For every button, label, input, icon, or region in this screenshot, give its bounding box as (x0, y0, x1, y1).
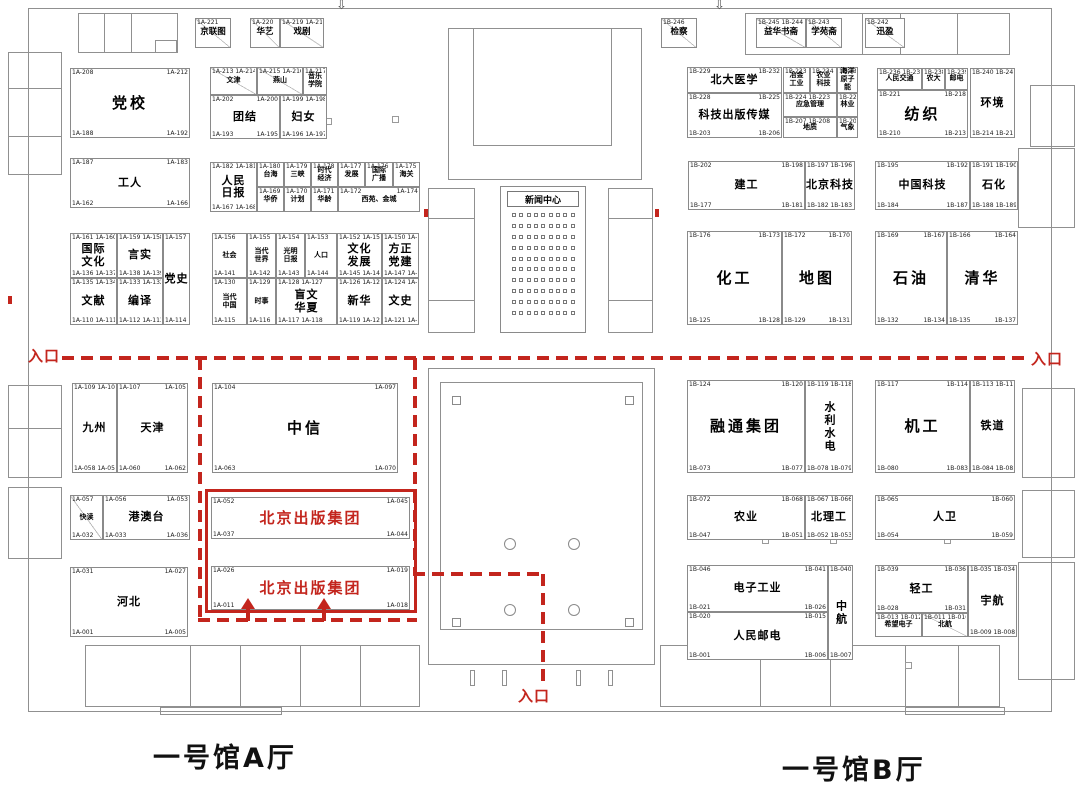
booth-label: 清华 (948, 232, 1017, 324)
booth-beida-yixue: 1B-2291B-232北大医学 (687, 67, 782, 93)
booth-taihai: 1A-180台海 (257, 162, 284, 187)
booth-beiligong: 1B-067 1B-066北理工1B-052 1B-053 (805, 495, 853, 540)
fire-mark-icon (424, 209, 428, 217)
booth-numbers: 1B-214 1B-215 (972, 130, 1013, 138)
booth-number: 1B-206 (758, 130, 780, 138)
booth-number: 1B-026 (804, 604, 826, 612)
booth-huanjing: 1B-240 1B-241环境1B-214 1B-215 (970, 68, 1015, 138)
booth-number: 1A-138 1A-139 (119, 270, 161, 278)
booth-yinyue-xueyuan: 1A-217音乐 学院 (303, 67, 327, 95)
booth-numbers: 1A-114 (165, 317, 188, 325)
seat (549, 311, 553, 315)
booth-wenjin: 1A-213 1A-214文津 (210, 67, 257, 95)
booth-numbers: 1B-1291B-131 (784, 317, 850, 325)
seat (527, 224, 531, 228)
booth-numbers: 1B-2101B-213 (879, 130, 966, 138)
wall (1018, 562, 1075, 680)
booth-hebei: 1A-0311A-027河北1A-0011A-005 (70, 567, 188, 637)
wall (428, 218, 475, 219)
path-arrow-icon (317, 598, 331, 609)
booth-number: 1B-054 (877, 532, 899, 540)
booth-numbers: 1A-136 1A-137 (72, 270, 115, 278)
booth-dianzi-gongye: 1B-0461B-041电子工业1B-0211B-026 (687, 565, 828, 612)
booth-label: 华艺 (251, 19, 279, 47)
booth-number: 1B-132 (877, 317, 899, 325)
booth-numbers: 1A-147 1A-148 (384, 270, 417, 278)
booth-label: 计划 (285, 188, 310, 211)
wall (1022, 490, 1075, 558)
booth-label: 化工 (688, 232, 781, 324)
wall (155, 40, 177, 53)
wall (8, 136, 62, 137)
booth-label: 华侨 (258, 188, 283, 211)
seat (519, 289, 523, 293)
booth-label: 天津 (118, 384, 187, 472)
booth-numbers: 1B-182 1B-183 (807, 202, 853, 210)
entrance-label-left: 入口 (28, 345, 60, 366)
booth-number: 1A-110 1A-111 (72, 317, 115, 325)
booth-label: 华龄 (312, 188, 337, 211)
seat (563, 278, 567, 282)
booth-youdian: 1B-239邮电 (945, 68, 968, 90)
seat (512, 300, 516, 304)
booth-xiju: 1A-219 1A-218戏剧 (280, 18, 324, 48)
booth-number: 1B-184 (877, 202, 899, 210)
booth-wenxian: 1A-135 1A-134文献1A-110 1A-111 (70, 278, 117, 325)
booth-keji-chuban-chuanmei: 1B-2281B-225科技出版传媒1B-2031B-206 (687, 93, 782, 138)
booth-label: 气象 (838, 118, 857, 137)
booth-dangxiao: 1A-2081A-212党校1A-1881A-192 (70, 68, 190, 138)
seat (512, 267, 516, 271)
booth-zhonghang: 1B-040中航1B-007 (828, 565, 853, 660)
seat (534, 278, 538, 282)
booth-number: 1B-177 (690, 202, 712, 210)
booth-rongtong-jituan: 1B-1241B-120融通集团1B-0731B-077 (687, 380, 805, 473)
wall (428, 300, 475, 301)
booth-guangming-ribao: 1A-154光明 日报1A-143 (276, 233, 305, 278)
path-arrow-icon (241, 598, 255, 609)
booth-number: 1B-073 (689, 465, 711, 473)
booth-number: 1A-193 (212, 131, 233, 139)
fire-mark-icon (8, 296, 12, 304)
seat (527, 300, 531, 304)
booth-huayi: 1A-220华艺 (250, 18, 280, 48)
booth-number: 1A-167 1A-168 (212, 204, 255, 212)
seat (563, 267, 567, 271)
booth-numbers: 1A-121 1A-122 (384, 317, 417, 325)
seat (563, 300, 567, 304)
booth-label: 迅盈 (866, 19, 904, 47)
pillar (905, 662, 912, 669)
seat (527, 311, 531, 315)
booth-huagong: 1B-1761B-173化工1B-1251B-128 (687, 231, 782, 325)
booth-number: 1B-214 1B-215 (972, 130, 1013, 138)
booth-numbers: 1B-1251B-128 (689, 317, 780, 325)
booth-shishi: 1A-129时事1A-116 (247, 278, 276, 325)
booth-tiedao: 1B-113 1B-112铁道1B-084 1B-085 (970, 380, 1015, 473)
seat (512, 311, 516, 315)
seat (527, 235, 531, 239)
booth-numbers: 1B-009 1B-008 (970, 629, 1015, 637)
booth-numbers: 1B-078 1B-079 (807, 465, 851, 473)
booth-sanxia: 1A-179三峡 (284, 162, 311, 187)
seat (571, 213, 575, 217)
exhibition-floor-plan: 新闻中心 1A-221京联图1A-220华艺1A-219 1A-218戏剧1A-… (0, 0, 1080, 786)
entrance-arrow-icon: ⇩ (336, 0, 347, 13)
booth-huaqiao: 1A-169华侨 (257, 187, 284, 212)
booth-numbers: 1A-142 (249, 270, 274, 278)
booth-numbers: 1B-1771B-181 (690, 202, 803, 210)
booth-shidai-jingji: 1A-178时代 经济 (311, 162, 338, 187)
booth-numbers: 1B-2031B-206 (689, 130, 780, 138)
seat (571, 278, 575, 282)
booth-beihang: 1B-011 1B-010北航 (922, 613, 968, 637)
wall (428, 188, 475, 333)
booth-number: 1A-060 (119, 465, 140, 473)
booth-numbers: 1A-058 1A-059 (74, 465, 115, 473)
seat (549, 300, 553, 304)
booth-number: 1B-188 1B-189 (972, 202, 1016, 210)
entrance-label-right: 入口 (1031, 348, 1063, 369)
booth-numbers: 1B-084 1B-085 (972, 465, 1013, 473)
seat (519, 224, 523, 228)
wall (502, 670, 507, 686)
seat (556, 278, 560, 282)
booth-number: 1A-117 1A-118 (278, 317, 323, 325)
booth-fazhan: 1A-177发展 (338, 162, 365, 187)
seat (556, 213, 560, 217)
booth-number: 1B-001 (689, 652, 711, 660)
booth-fangzheng-dangjian: 1A-150 1A-149方正 党建1A-147 1A-148 (382, 233, 419, 278)
booth-number: 1A-112 1A-113 (119, 317, 161, 325)
booth-wenshi: 1A-124 1A-123文史1A-121 1A-122 (382, 278, 419, 325)
booth-number: 1A-005 (165, 629, 186, 637)
booth-numbers: 1A-141 (214, 270, 245, 278)
booth-numbers: 1A-138 1A-139 (119, 270, 161, 278)
booth-number: 1A-033 (105, 532, 126, 540)
wall (905, 645, 906, 707)
booth-number: 1B-125 (689, 317, 711, 325)
booth-label: 地图 (783, 232, 851, 324)
booth-yuhang: 1B-035 1B-034宇航1B-009 1B-008 (968, 565, 1017, 637)
booth-numbers: 1B-0281B-031 (877, 605, 966, 613)
booth-renmin-ribao: 1A-182 1A-181人民 日报1A-167 1A-168 (210, 162, 257, 212)
seat (512, 257, 516, 261)
wall (576, 670, 581, 686)
seat (563, 289, 567, 293)
booth-number: 1A-115 (214, 317, 235, 325)
booth-renkou: 1A-153人口1A-144 (305, 233, 337, 278)
booth-jinglian: 1A-221京联图 (195, 18, 231, 48)
booth-number: 1A-196 1A-197 (282, 131, 325, 139)
seat (534, 246, 538, 250)
seat (549, 246, 553, 250)
booth-numbers: 1A-143 (278, 270, 303, 278)
booth-jiancha: 1B-246检察 (661, 18, 697, 48)
seat (527, 246, 531, 250)
booth-number: 1A-145 1A-146 (339, 270, 380, 278)
booth-numbers: 1B-0011B-006 (689, 652, 826, 660)
booth-number: 1A-001 (72, 629, 93, 637)
booth-nongye: 1B-0721B-068农业1B-0471B-051 (687, 495, 805, 540)
route-dash-left (198, 358, 202, 620)
booth-guoji-wenhua: 1A-161 1A-160国际 文化1A-136 1A-137 (70, 233, 117, 278)
booth-number: 1B-129 (784, 317, 806, 325)
seat (549, 235, 553, 239)
booth-yingji-guanli: 1B-224 1B-223应急管理 (783, 93, 837, 117)
seat (549, 267, 553, 271)
booth-number: 1A-036 (167, 532, 188, 540)
hall-a-title: 一号馆A厅 (153, 736, 297, 775)
booth-label: 林业 (838, 94, 857, 116)
booth-number: 1B-028 (877, 605, 899, 613)
booth-number: 1B-210 (879, 130, 901, 138)
seat (519, 257, 523, 261)
seat (527, 267, 531, 271)
highlight-box-beijing-chuban-jituan (205, 489, 417, 613)
booth-numbers: 1A-1881A-192 (72, 130, 188, 138)
booth-nongda: 1B-238农大 (922, 68, 945, 90)
booth-number: 1A-195 (257, 131, 278, 139)
booth-label: 时代 经济 (312, 163, 337, 186)
seat (563, 311, 567, 315)
wall (1022, 388, 1075, 478)
booth-nongye-keji: 1B-234农业 科技 (810, 67, 837, 93)
booth-numbers: 1A-032 (72, 532, 101, 540)
booth-number: 1A-032 (72, 532, 93, 540)
booth-numbers: 1B-007 (830, 652, 851, 660)
seat (512, 213, 516, 217)
fire-mark-icon (655, 209, 659, 217)
seat (527, 213, 531, 217)
seat (527, 257, 531, 261)
floor-circle (504, 538, 516, 550)
booth-numbers: 1B-0541B-059 (877, 532, 1013, 540)
booth-shuili-shuidian: 1B-119 1B-118水利水电1B-078 1B-079 (805, 380, 853, 473)
booth-number: 1B-128 (758, 317, 780, 325)
booth-numbers: 1A-0631A-070 (214, 465, 396, 473)
booth-zhongxin: 1A-1041A-097中信1A-0631A-070 (212, 383, 398, 473)
booth-number: 1B-047 (689, 532, 711, 540)
booth-xiyuan-jincheng: 1A-1721A-174西苑、金城 (338, 187, 420, 212)
booth-number: 1A-141 (214, 270, 235, 278)
booth-dangdai-shijie: 1A-155当代 世界1A-142 (247, 233, 276, 278)
booth-label: 益华书斋 (757, 19, 805, 47)
seat (571, 267, 575, 271)
booth-number: 1B-203 (689, 130, 711, 138)
booth-label: 河北 (71, 568, 187, 636)
seat (571, 224, 575, 228)
wall (8, 88, 62, 89)
booth-numbers: 1A-196 1A-197 (282, 131, 325, 139)
wall (905, 707, 1005, 715)
booth-label: 环境 (971, 69, 1014, 137)
booth-numbers: 1A-0601A-062 (119, 465, 186, 473)
booth-numbers: 1A-1931A-195 (212, 131, 278, 139)
seat (541, 278, 545, 282)
seat (571, 257, 575, 261)
wall (240, 645, 241, 707)
wall (1018, 148, 1075, 228)
seat (534, 311, 538, 315)
booth-mangwen-huaxia: 1A-128 1A-127盲文 华夏1A-117 1A-118 (276, 278, 337, 325)
seat (512, 289, 516, 293)
seat (541, 257, 545, 261)
booth-label: 农大 (923, 69, 944, 89)
seat (571, 246, 575, 250)
booth-numbers: 1B-052 1B-053 (807, 532, 851, 540)
booth-numbers: 1B-0731B-077 (689, 465, 803, 473)
booth-number: 1B-021 (689, 604, 711, 612)
booth-label: 北大医学 (688, 68, 781, 92)
booth-number: 1A-166 (167, 200, 188, 208)
booth-bianyi: 1A-133 1A-132编译1A-112 1A-113 (117, 278, 163, 325)
booth-label: 宇航 (969, 566, 1016, 636)
booth-shihua: 1B-191 1B-190石化1B-188 1B-189 (970, 161, 1018, 210)
wall (190, 645, 191, 707)
seat (512, 224, 516, 228)
booth-label: 党史 (164, 234, 189, 324)
seat (519, 267, 523, 271)
booth-label: 戏剧 (281, 19, 323, 47)
booth-renmin-youdian: 1B-0201B-015人民邮电1B-0011B-006 (687, 612, 828, 660)
booth-number: 1A-121 1A-122 (384, 317, 417, 325)
pillar (392, 116, 399, 123)
seat (534, 289, 538, 293)
booth-numbers: 1B-0801B-083 (877, 465, 968, 473)
seat (541, 235, 545, 239)
booth-label: 水利水电 (806, 381, 852, 472)
booth-numbers: 1B-1841B-187 (877, 202, 968, 210)
booth-xueyuanzhai: 1B-243学苑斋 (806, 18, 842, 48)
wall (160, 707, 282, 715)
news-center-seats (512, 213, 576, 317)
booth-numbers: 1B-0471B-051 (689, 532, 803, 540)
booth-label: 地质 (784, 118, 836, 137)
seat (541, 289, 545, 293)
booth-number: 1B-009 1B-008 (970, 629, 1015, 637)
booth-number: 1A-058 1A-059 (74, 465, 115, 473)
booth-label: 三峡 (285, 163, 310, 186)
seat (556, 246, 560, 250)
route-dash-bottom (198, 618, 417, 622)
booth-number: 1B-083 (946, 465, 968, 473)
floor-square (452, 618, 461, 627)
seat (556, 289, 560, 293)
booth-label: 中信 (213, 384, 397, 472)
booth-number: 1B-084 1B-085 (972, 465, 1013, 473)
booth-number: 1B-077 (781, 465, 803, 473)
wall (958, 645, 959, 707)
booth-yanshan: 1A-215 1A-216燕山 (257, 67, 303, 95)
booth-number: 1B-007 (830, 652, 851, 660)
booth-label: 音乐 学院 (304, 68, 326, 94)
booth-tianjin: 1A-1071A-105天津1A-0601A-062 (117, 383, 188, 473)
booth-number: 1A-114 (165, 317, 186, 325)
seat (534, 267, 538, 271)
booth-number: 1A-063 (214, 465, 235, 473)
booth-number: 1B-051 (781, 532, 803, 540)
booth-yihua-shuzhai: 1B-245 1B-244益华书斋 (756, 18, 806, 48)
booth-tuanjie: 1A-2021A-200团结1A-1931A-195 (210, 95, 280, 139)
booth-number: 1B-031 (944, 605, 966, 613)
booth-number: 1B-080 (877, 465, 899, 473)
floor-circle (568, 538, 580, 550)
seat (571, 289, 575, 293)
route-dash-top (62, 356, 1030, 360)
seat (534, 213, 538, 217)
booth-label: 人民交通 (878, 69, 921, 89)
booth-label: 石油 (876, 232, 946, 324)
booth-shehui: 1A-156社会1A-141 (212, 233, 247, 278)
booth-dangdai-zhongguo: 1A-130当代 中国1A-115 (212, 278, 247, 325)
floor-circle (504, 604, 516, 616)
booth-label: 检察 (662, 19, 696, 47)
booth-numbers: 1A-115 (214, 317, 245, 325)
seat (556, 300, 560, 304)
route-dash-entry (541, 574, 545, 684)
booth-beijing-keji: 1B-197 1B-196北京科技1B-182 1B-183 (805, 161, 855, 210)
booth-label: 学苑斋 (807, 19, 841, 47)
booth-label: 应急管理 (784, 94, 836, 116)
booth-numbers: 1A-117 1A-118 (278, 317, 335, 325)
seat (549, 257, 553, 261)
booth-numbers: 1B-1351B-137 (949, 317, 1016, 325)
booth-gongren: 1A-1871A-183工人1A-1621A-166 (70, 158, 190, 208)
seat (563, 224, 567, 228)
booth-number: 1B-006 (804, 652, 826, 660)
booth-label: 党校 (71, 69, 189, 137)
booth-label: 邮电 (946, 69, 967, 89)
booth-numbers: 1A-110 1A-111 (72, 317, 115, 325)
booth-numbers: 1B-1321B-134 (877, 317, 945, 325)
booth-renmin-jiaotong: 1B-236 1B-237人民交通 (877, 68, 922, 90)
seat (541, 213, 545, 217)
hall-b-title: 一号馆B厅 (782, 748, 926, 786)
seat (519, 311, 523, 315)
booth-number: 1A-119 1A-120 (339, 317, 380, 325)
booth-number: 1B-135 (949, 317, 971, 325)
booth-haiguan: 1A-175海关 (393, 162, 420, 187)
seat (549, 213, 553, 217)
floor-square (625, 396, 634, 405)
wall (608, 188, 653, 333)
booth-zhongguo-keji: 1B-1951B-192中国科技1B-1841B-187 (875, 161, 970, 210)
booth-numbers: 1A-119 1A-120 (339, 317, 380, 325)
booth-jiuzhou: 1A-109 1A-108九州1A-058 1A-059 (72, 383, 117, 473)
booth-wenhua-fazhan: 1A-152 1A-151文化 发展1A-145 1A-146 (337, 233, 382, 278)
booth-haiyang-yuanzineng: 1B-235海洋 原子能 (837, 67, 858, 93)
booth-label: 中航 (829, 566, 852, 659)
seat (534, 257, 538, 261)
entrance-label-bottom: 入口 (518, 685, 550, 706)
seat (534, 224, 538, 228)
wall (85, 645, 420, 707)
booth-label: 机工 (876, 381, 969, 472)
seat (563, 257, 567, 261)
booth-numbers: 1B-0211B-026 (689, 604, 826, 612)
floor-circle (568, 604, 580, 616)
seat (541, 224, 545, 228)
booth-number: 1A-070 (375, 465, 396, 473)
booth-label: 国际 广播 (366, 163, 392, 186)
news-center-label: 新闻中心 (507, 191, 579, 207)
booth-number: 1A-143 (278, 270, 299, 278)
booth-number: 1B-078 1B-079 (807, 465, 851, 473)
seat (556, 267, 560, 271)
wall (470, 670, 475, 686)
wall (473, 28, 612, 146)
